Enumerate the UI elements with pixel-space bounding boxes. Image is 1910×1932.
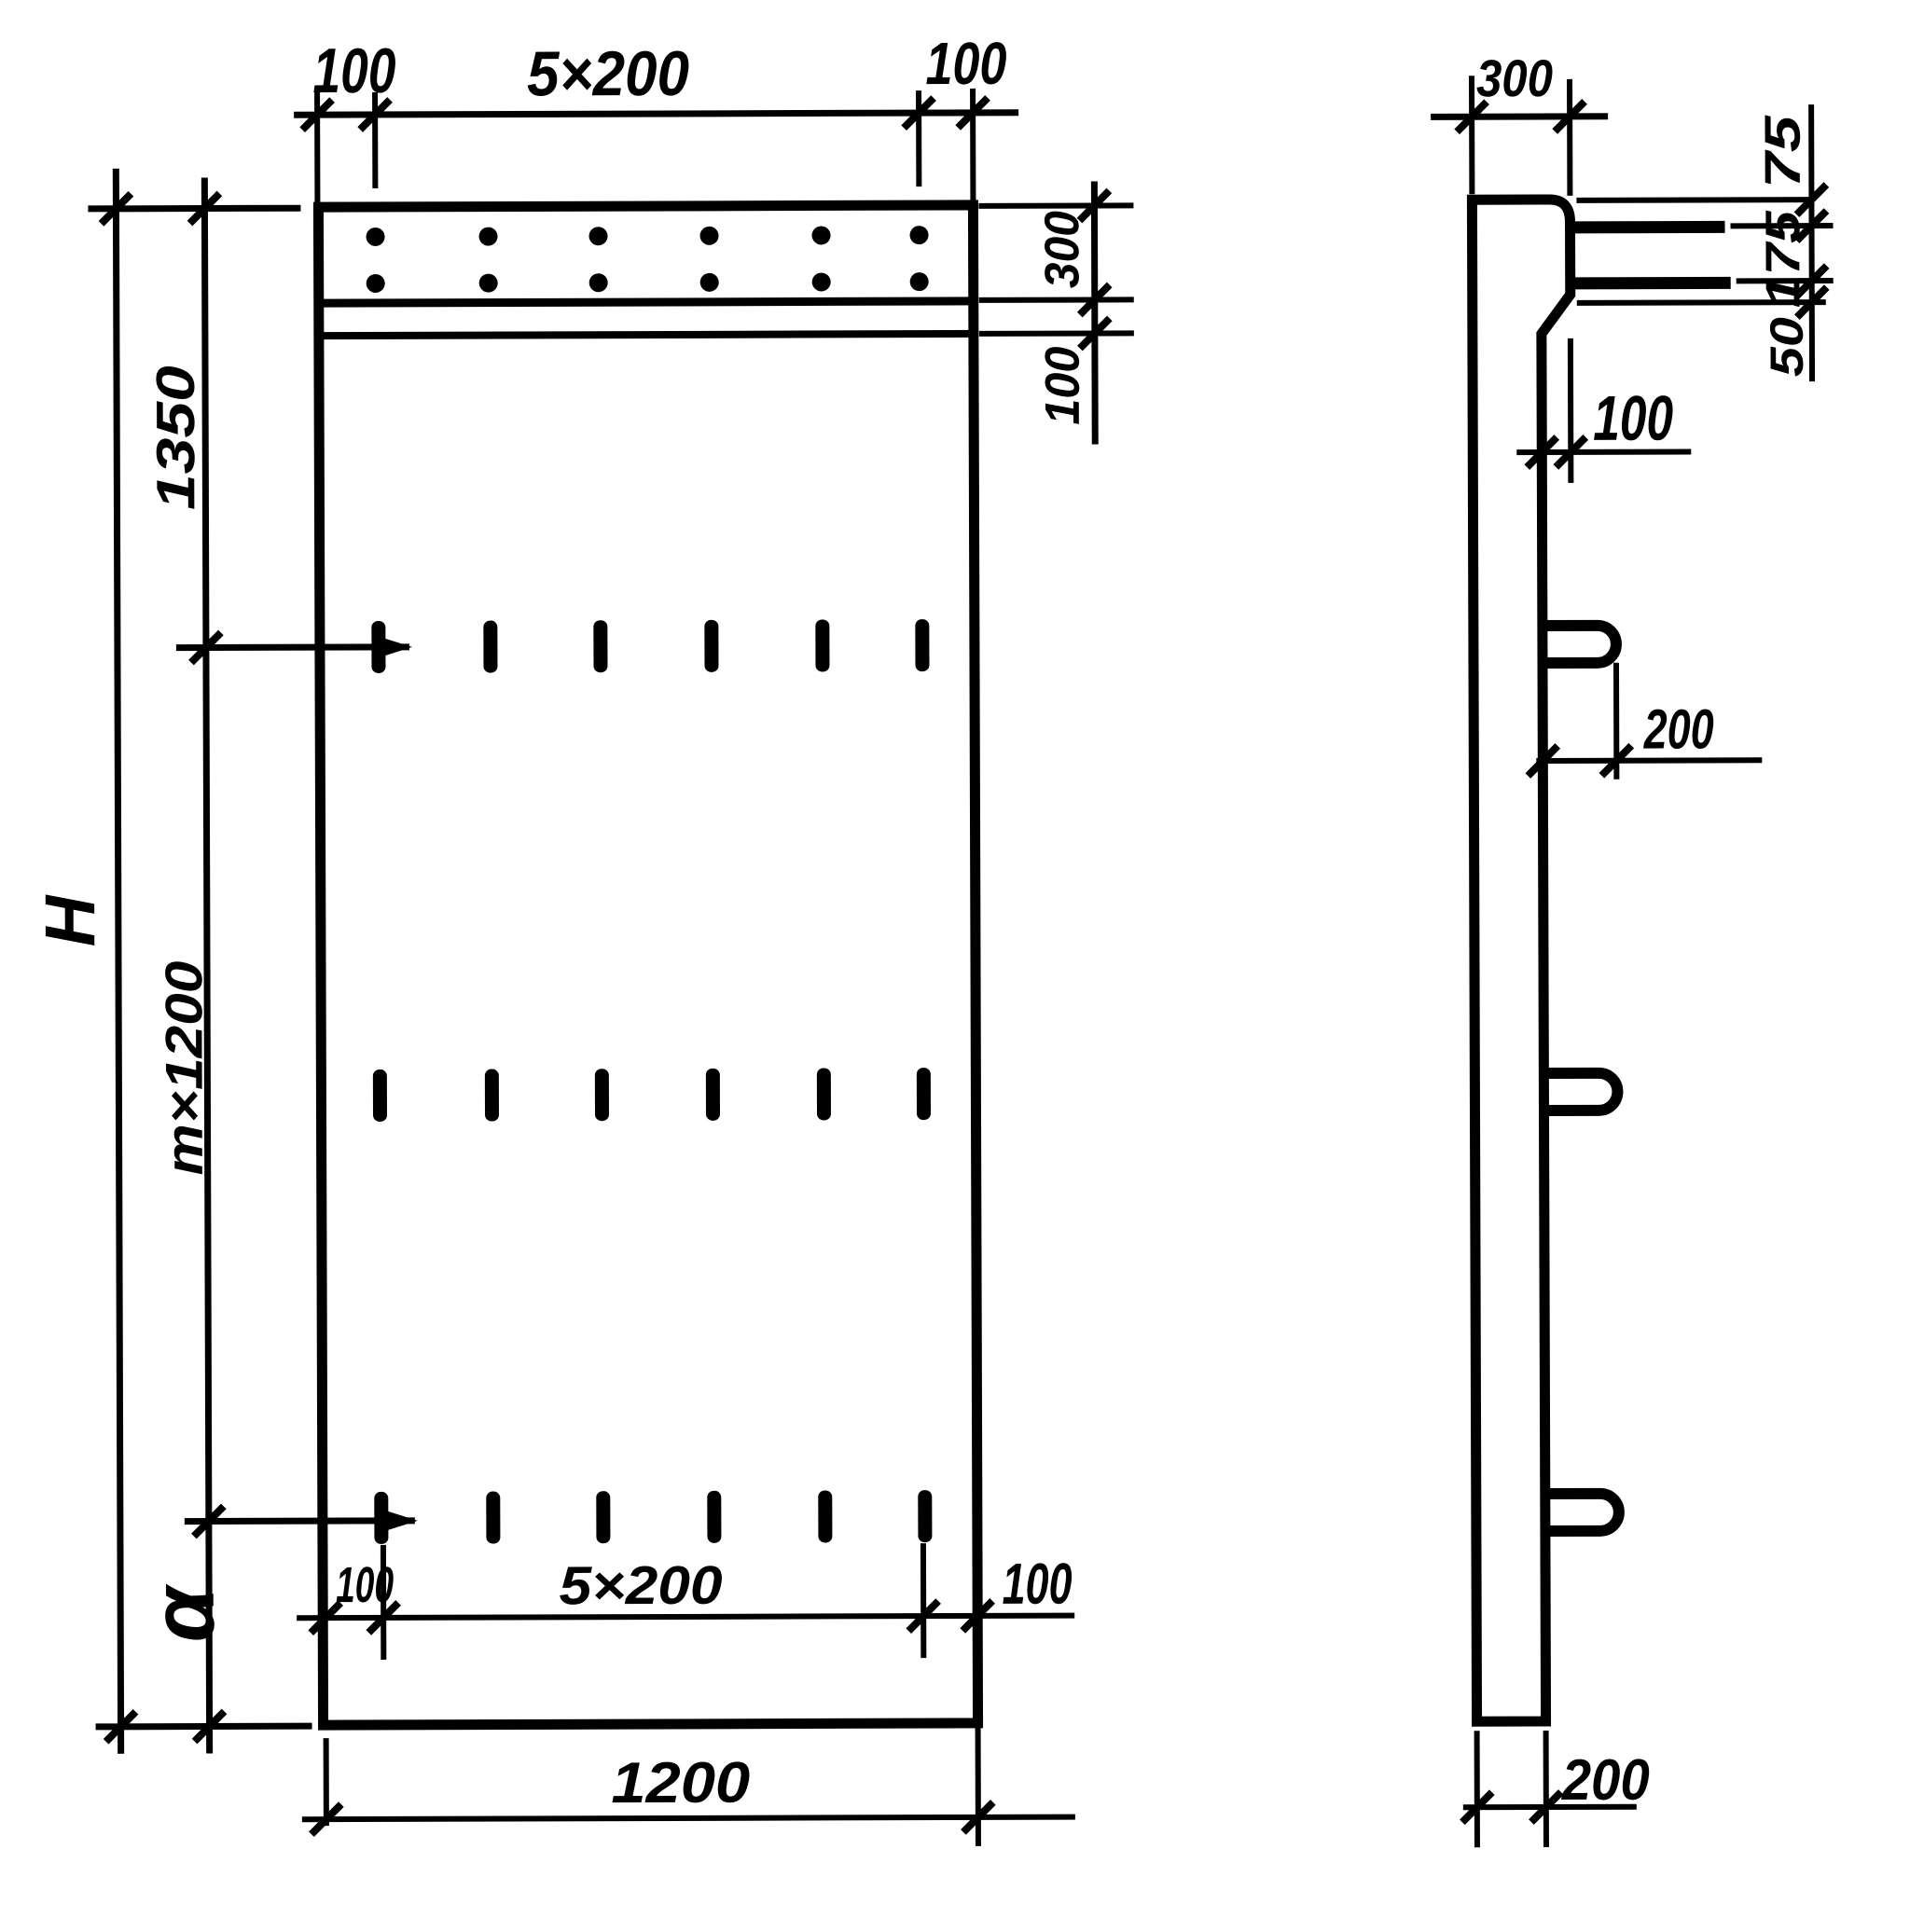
svg-text:m×1200: m×1200 [154,961,214,1176]
svg-text:100: 100 [1002,1552,1072,1617]
svg-text:100: 100 [1036,346,1090,424]
svg-text:α: α [133,1583,233,1642]
svg-text:1350: 1350 [145,366,206,510]
svg-text:5×200: 5×200 [527,38,689,110]
svg-text:100: 100 [336,1557,394,1613]
svg-text:75: 75 [1755,115,1811,188]
svg-text:200: 200 [1643,697,1714,760]
svg-text:H: H [31,893,110,946]
svg-text:100: 100 [925,30,1006,97]
svg-text:100: 100 [312,35,395,106]
svg-text:1200: 1200 [611,1751,750,1815]
svg-text:100: 100 [1593,383,1673,454]
svg-text:50: 50 [1761,317,1813,377]
svg-text:300: 300 [1476,48,1553,107]
svg-text:300: 300 [1035,211,1089,288]
svg-text:200: 200 [1561,1748,1650,1813]
svg-text:5×200: 5×200 [559,1555,722,1617]
svg-text:175: 175 [1756,210,1810,308]
